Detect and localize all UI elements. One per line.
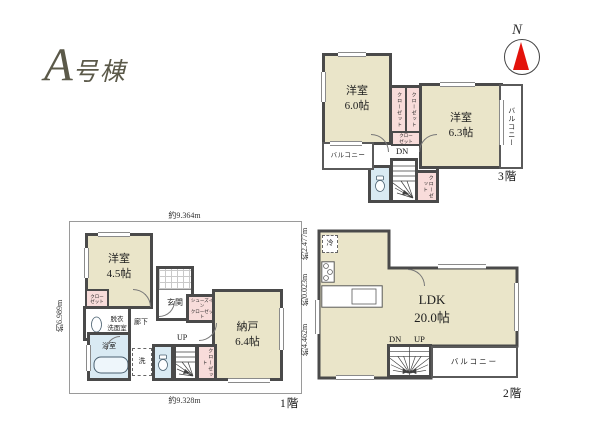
f3-closet-top: クロー ゼット bbox=[391, 131, 421, 146]
f2-kitchen-counter-icon bbox=[321, 285, 383, 308]
f2-stove-icon bbox=[321, 261, 335, 283]
f1-closet-stair-side: クローゼット bbox=[196, 344, 217, 381]
f2-stairs-up-label: UP bbox=[414, 334, 425, 344]
f1-stairs-up-label: UP bbox=[177, 333, 187, 342]
f3-window-icon bbox=[330, 141, 362, 146]
compass-north-label: N bbox=[512, 20, 522, 40]
f1-window-icon bbox=[86, 345, 91, 371]
f1-washroom-label: 脱衣 洗面室 bbox=[104, 316, 130, 334]
f3-western-room-6-3-label: 洋室 6.3帖 bbox=[449, 111, 474, 141]
f3-western-room-6-3: 洋室 6.3帖 bbox=[419, 83, 503, 169]
f2-window-icon bbox=[336, 375, 374, 380]
f1-window-icon bbox=[279, 308, 284, 350]
f3-closet-stair-side-label: クローゼット bbox=[421, 173, 433, 200]
f2-stairs-icon bbox=[390, 347, 429, 375]
f3-western-room-6-0: 洋室 6.0帖 bbox=[322, 53, 392, 145]
f3-stairs-dn-label: DN bbox=[396, 146, 408, 156]
f3-toilet-icon bbox=[374, 175, 386, 193]
f1-floor-label: 1階 bbox=[280, 395, 299, 411]
f3-balcony-left: バルコニー bbox=[322, 142, 374, 170]
compass-needle-icon bbox=[513, 42, 529, 70]
f1-closet-room-label: クロー ゼット bbox=[90, 294, 104, 305]
building-title-suffix: 号棟 bbox=[73, 59, 127, 86]
f3-closet-left-label: クローゼット bbox=[395, 92, 401, 128]
f1-window-icon bbox=[84, 248, 89, 278]
f1-dim-right-3: 約4.462m bbox=[299, 300, 310, 356]
f3-floor-label: 3階 bbox=[498, 168, 517, 184]
f3-window-icon bbox=[440, 82, 475, 87]
f1-dim-right-2: 約0.023m bbox=[299, 252, 310, 306]
f3-closet-right-label: クローゼット bbox=[410, 92, 416, 128]
f2-window-icon bbox=[438, 264, 486, 269]
f3-toilet-room bbox=[368, 165, 392, 203]
f3-closet-stair-side: クローゼット bbox=[415, 170, 439, 203]
floor-plan-canvas: A号棟 N 洋室 6.0帖 洋室 6.3帖 クローゼット クローゼット クロー … bbox=[0, 0, 600, 424]
f1-dim-top: 約9.364m bbox=[69, 210, 300, 221]
f2-stairs-dn-label: DN bbox=[389, 334, 401, 344]
f3-window-icon bbox=[321, 72, 326, 102]
f1-storage-room-label: 納戸 6.4帖 bbox=[235, 320, 260, 350]
f3-balcony-right-label: バルコニー bbox=[506, 107, 515, 147]
f3-closet-right: クローゼット bbox=[407, 88, 420, 132]
f2-balcony: バルコニー bbox=[431, 346, 518, 378]
f2-window-icon bbox=[315, 300, 320, 334]
f3-closet-left: クローゼット bbox=[392, 88, 407, 132]
f1-toilet-room bbox=[152, 344, 174, 381]
f2-stairs bbox=[387, 344, 432, 378]
f2-window-icon bbox=[514, 283, 519, 331]
compass-icon bbox=[504, 39, 540, 75]
f1-dim-bottom: 約9.328m bbox=[69, 395, 300, 406]
f3-window-icon bbox=[499, 100, 504, 145]
f2-floor-label: 2階 bbox=[503, 385, 522, 401]
f2-fridge-label: 冷 bbox=[327, 239, 334, 248]
f3-balcony-left-label: バルコニー bbox=[331, 152, 366, 161]
f1-stairs bbox=[173, 344, 198, 381]
f2-balcony-label: バルコニー bbox=[451, 357, 498, 367]
f3-stairs bbox=[390, 158, 418, 203]
f3-stairs-icon bbox=[393, 161, 415, 200]
f1-storage-room: 納戸 6.4帖 bbox=[212, 289, 283, 381]
f1-entrance-tiles-icon bbox=[159, 269, 191, 290]
f1-dim-left: 約6.989m bbox=[54, 262, 65, 332]
f1-western-room-4-5-label: 洋室 4.5帖 bbox=[107, 252, 132, 282]
f3-closet-pair: クローゼット クローゼット bbox=[389, 85, 422, 135]
building-title: A号棟 bbox=[44, 38, 127, 92]
f2-ldk-label: LDK 20.0帖 bbox=[392, 291, 472, 326]
building-title-letter: A bbox=[44, 39, 73, 91]
f1-washer-label: 洗 bbox=[139, 357, 146, 366]
f3-western-room-6-0-label: 洋室 6.0帖 bbox=[345, 84, 370, 114]
f1-window-icon bbox=[98, 232, 130, 237]
f3-closet-top-label: クロー ゼット bbox=[399, 133, 413, 144]
f1-closet-stair-side-label: クローゼット bbox=[201, 347, 213, 378]
f1-bathtub-icon bbox=[93, 356, 129, 374]
f2-fridge-space: 冷 bbox=[322, 235, 338, 253]
f1-washer-space: 洗 bbox=[132, 348, 152, 376]
f1-toilet-icon bbox=[157, 354, 169, 372]
f1-stairs-icon bbox=[176, 347, 195, 378]
f1-window-icon bbox=[228, 378, 270, 383]
f1-hallway-label: 廊下 bbox=[134, 318, 148, 327]
f3-window-icon bbox=[338, 52, 366, 57]
